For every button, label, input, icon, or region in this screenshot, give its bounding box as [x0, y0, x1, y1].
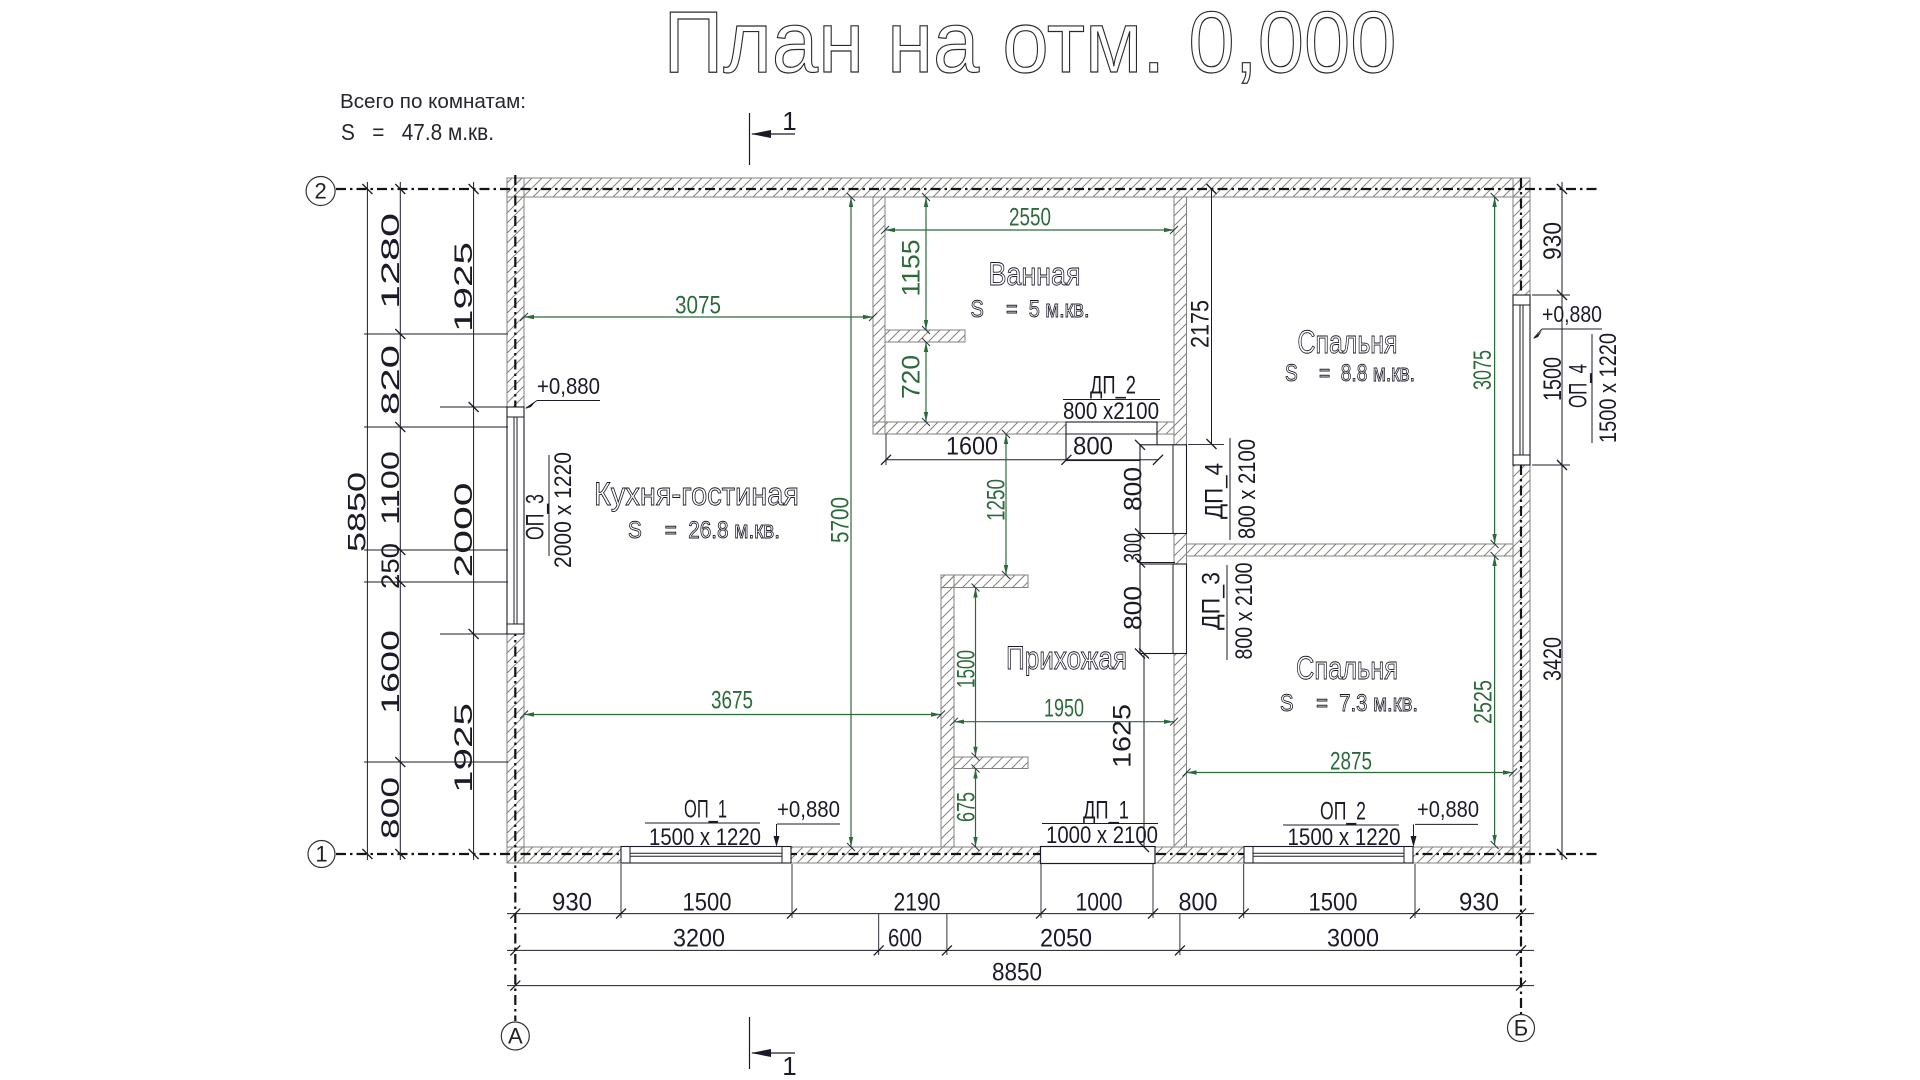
svg-text:Ванная: Ванная — [989, 256, 1081, 292]
svg-text:3200: 3200 — [673, 924, 725, 952]
svg-text:800: 800 — [1073, 432, 1113, 460]
svg-text:8850: 8850 — [992, 958, 1042, 986]
svg-text:ОП_1: ОП_1 — [684, 795, 727, 823]
svg-text:5700: 5700 — [826, 497, 854, 543]
svg-text:1950: 1950 — [1044, 694, 1084, 722]
svg-text:930: 930 — [552, 888, 592, 916]
svg-text:1100: 1100 — [377, 451, 405, 525]
svg-text:1000: 1000 — [1076, 888, 1123, 916]
svg-text:800 х2100: 800 х2100 — [1063, 398, 1159, 425]
svg-text:+0,880: +0,880 — [1542, 301, 1602, 327]
svg-text:1500: 1500 — [1539, 357, 1567, 401]
svg-text:2000: 2000 — [450, 483, 478, 578]
svg-text:800: 800 — [1179, 888, 1218, 916]
svg-text:1: 1 — [315, 841, 327, 866]
svg-text:2550: 2550 — [1009, 203, 1051, 231]
svg-text:800: 800 — [377, 777, 405, 839]
svg-text:1280: 1280 — [377, 213, 405, 309]
svg-text:1: 1 — [782, 106, 796, 136]
svg-text:800 х 2100: 800 х 2100 — [1231, 563, 1258, 660]
svg-text:720: 720 — [897, 355, 925, 399]
svg-text:2525: 2525 — [1469, 680, 1497, 724]
svg-text:300: 300 — [1119, 533, 1147, 563]
svg-text:600: 600 — [888, 924, 922, 952]
svg-text:S = 26.8 м.кв.: S = 26.8 м.кв. — [628, 517, 780, 544]
svg-text:800: 800 — [1119, 467, 1147, 511]
svg-text:1500: 1500 — [683, 888, 732, 916]
svg-text:1250: 1250 — [982, 479, 1010, 521]
svg-text:1: 1 — [782, 1051, 796, 1080]
svg-text:820: 820 — [377, 345, 405, 415]
svg-text:3075: 3075 — [675, 291, 721, 319]
svg-text:2: 2 — [314, 178, 326, 203]
svg-text:S = 8.8 м.кв.: S = 8.8 м.кв. — [1285, 360, 1415, 387]
svg-text:Б: Б — [1514, 1015, 1528, 1040]
svg-text:1625: 1625 — [1108, 704, 1136, 768]
svg-text:Кухня-гостиная: Кухня-гостиная — [594, 476, 799, 512]
svg-text:Спальня: Спальня — [1296, 650, 1398, 686]
svg-text:ДП_3: ДП_3 — [1197, 572, 1225, 630]
svg-text:1500 х 1220: 1500 х 1220 — [1595, 333, 1622, 443]
svg-text:3000: 3000 — [1327, 924, 1379, 952]
svg-text:+0,880: +0,880 — [777, 796, 840, 822]
svg-text:3075: 3075 — [1469, 350, 1497, 390]
svg-text:800 х 2100: 800 х 2100 — [1234, 439, 1261, 539]
svg-text:2875: 2875 — [1330, 747, 1372, 775]
svg-text:ОП_3: ОП_3 — [521, 494, 549, 540]
svg-text:Прихожая: Прихожая — [1006, 640, 1127, 676]
svg-text:1925: 1925 — [450, 242, 478, 332]
svg-text:1500: 1500 — [952, 650, 980, 688]
svg-text:3675: 3675 — [711, 686, 753, 714]
svg-text:1600: 1600 — [377, 630, 405, 714]
svg-text:ОП_4: ОП_4 — [1564, 364, 1592, 408]
svg-text:+0,880: +0,880 — [1417, 796, 1479, 822]
svg-text:1155: 1155 — [897, 240, 925, 297]
svg-text:2050: 2050 — [1040, 924, 1092, 952]
svg-text:S = 5 м.кв.: S = 5 м.кв. — [971, 296, 1090, 323]
svg-text:1600: 1600 — [946, 432, 998, 460]
svg-text:2000 х 1220: 2000 х 1220 — [550, 452, 577, 568]
svg-text:ДП_1: ДП_1 — [1083, 796, 1129, 824]
svg-text:800: 800 — [1119, 586, 1147, 630]
svg-text:S = 7.3 м.кв.: S = 7.3 м.кв. — [1280, 690, 1418, 717]
svg-text:1925: 1925 — [450, 703, 478, 793]
svg-text:+0,880: +0,880 — [537, 373, 600, 399]
svg-text:1500 х 1220: 1500 х 1220 — [649, 824, 761, 851]
svg-text:Спальня: Спальня — [1298, 324, 1398, 360]
svg-text:План на отм. 0,000: План на отм. 0,000 — [664, 0, 1397, 91]
svg-text:5850: 5850 — [343, 472, 371, 552]
svg-text:1500: 1500 — [1309, 888, 1358, 916]
svg-text:S = 47.8 м.кв.: S = 47.8 м.кв. — [341, 119, 494, 145]
svg-text:2190: 2190 — [894, 888, 941, 916]
svg-text:А: А — [508, 1023, 523, 1048]
svg-text:Всего по комнатам:: Всего по комнатам: — [340, 91, 526, 113]
svg-text:1000 х 2100: 1000 х 2100 — [1046, 822, 1158, 849]
svg-text:675: 675 — [952, 792, 980, 822]
svg-text:ДП_4: ДП_4 — [1200, 463, 1228, 519]
svg-text:930: 930 — [1459, 888, 1499, 916]
svg-text:ДП_2: ДП_2 — [1090, 371, 1136, 399]
svg-text:3420: 3420 — [1539, 637, 1567, 681]
svg-text:930: 930 — [1539, 222, 1567, 260]
svg-text:2175: 2175 — [1186, 300, 1214, 348]
svg-text:1500 х 1220: 1500 х 1220 — [1288, 824, 1401, 851]
svg-text:ОП_2: ОП_2 — [1320, 797, 1366, 825]
